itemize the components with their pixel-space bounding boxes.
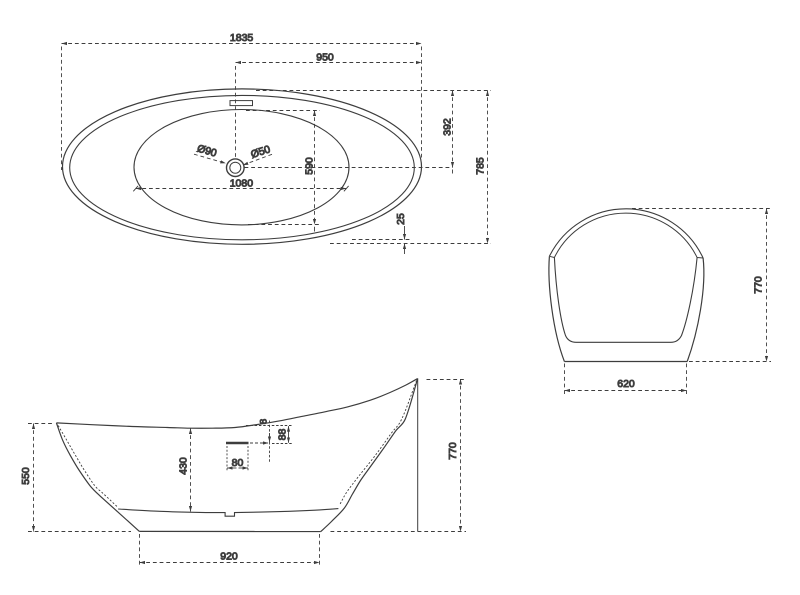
svg-text:1835: 1835 xyxy=(230,32,254,44)
svg-text:550: 550 xyxy=(20,467,32,485)
svg-text:920: 920 xyxy=(220,551,238,563)
svg-text:620: 620 xyxy=(617,378,635,390)
svg-text:25: 25 xyxy=(395,213,407,225)
svg-text:80: 80 xyxy=(232,457,244,469)
svg-text:770: 770 xyxy=(753,276,765,294)
svg-text:1080: 1080 xyxy=(230,177,254,189)
svg-text:770: 770 xyxy=(447,442,459,460)
svg-text:590: 590 xyxy=(304,157,316,175)
svg-text:8: 8 xyxy=(259,419,270,424)
svg-text:785: 785 xyxy=(475,157,487,175)
svg-text:950: 950 xyxy=(316,52,334,64)
svg-text:Ø50: Ø50 xyxy=(249,143,272,161)
svg-text:430: 430 xyxy=(178,457,190,475)
svg-text:392: 392 xyxy=(442,118,454,136)
svg-text:Ø90: Ø90 xyxy=(196,143,219,160)
svg-text:88: 88 xyxy=(277,429,289,441)
